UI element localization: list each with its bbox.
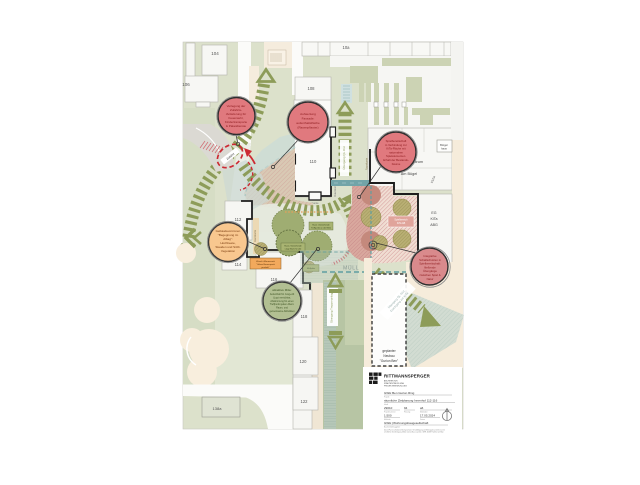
- svg-text:Rase 1 bestehende: Rase 1 bestehende: [312, 223, 330, 226]
- svg-text:EG: EG: [431, 211, 436, 215]
- svg-text:Übergang Treppenanlage: Übergang Treppenanlage: [330, 291, 334, 323]
- svg-text:Raumkante: Raumkante: [366, 157, 369, 170]
- svg-text:"Gurion Ben": "Gurion Ben": [380, 359, 398, 363]
- svg-text:120: 120: [300, 359, 308, 364]
- svg-text:PROJEKTENTWICKLUNG: PROJEKTENTWICKLUNG: [384, 385, 407, 387]
- svg-text:Rase 2 bestehende: Rase 2 bestehende: [284, 244, 302, 247]
- svg-text:112: 112: [235, 217, 242, 222]
- svg-text:17.05.2024: 17.05.2024: [420, 414, 435, 418]
- svg-text:geplanter: geplanter: [382, 349, 396, 353]
- svg-text:104: 104: [211, 51, 219, 56]
- svg-text:Übergang QL Ost: Übergang QL Ost: [342, 146, 346, 170]
- svg-text:haus: haus: [441, 147, 447, 151]
- svg-text:& Paketdienste: & Paketdienste: [226, 124, 247, 128]
- svg-text:Bauherr Auftraggeber: Bauherr Auftraggeber: [384, 425, 401, 428]
- svg-text:MÜLL: MÜLL: [343, 265, 359, 272]
- svg-text:KiTa AB: KiTa AB: [397, 222, 406, 225]
- svg-text:Projekt: Projekt: [384, 395, 390, 398]
- svg-text:94: 94: [404, 406, 408, 410]
- svg-text:räumliche Zielplanung Innenhof: räumliche Zielplanung Innenhof 112-116: [384, 399, 438, 403]
- svg-text:118: 118: [301, 314, 308, 319]
- svg-text:GWH (Wohnungsbaugesellschaft: GWH (Wohnungsbaugesellschaft: [384, 421, 428, 425]
- svg-text:Treffpunkt an der Mitte: Treffpunkt an der Mitte: [311, 226, 332, 229]
- svg-text:Neubau: Neubau: [383, 354, 394, 358]
- svg-text:106: 106: [182, 82, 190, 87]
- svg-text:(Rasenpflaster): (Rasenpflaster): [297, 126, 318, 130]
- svg-text:Bürger: Bürger: [440, 143, 448, 147]
- svg-text:138a: 138a: [213, 406, 223, 411]
- svg-text:Natur: Natur: [427, 277, 434, 281]
- svg-text:108: 108: [308, 86, 316, 91]
- svg-text:10a: 10a: [343, 45, 351, 50]
- svg-text:1:500: 1:500: [384, 414, 392, 418]
- svg-text:114: 114: [235, 262, 242, 267]
- svg-text:Am Bügel: Am Bügel: [401, 172, 418, 176]
- svg-text:KiTa: KiTa: [431, 217, 438, 221]
- svg-text:"Urban Bannerpark: "Urban Bannerpark: [256, 263, 276, 266]
- svg-text:110: 110: [310, 159, 317, 164]
- svg-text:produkt": produkt": [261, 266, 269, 269]
- svg-text:122: 122: [301, 399, 309, 404]
- svg-text:attraktive Mitte:: attraktive Mitte:: [272, 288, 292, 292]
- svg-text:Wand it Mauerwerk: Wand it Mauerwerk: [256, 260, 276, 263]
- svg-text:Maßstäbe: Maßstäbe: [420, 410, 428, 413]
- svg-text:ABG: ABG: [430, 223, 438, 227]
- svg-text:Raumkante: Raumkante: [254, 229, 257, 242]
- svg-text:Planung: Planung: [404, 411, 410, 413]
- svg-text:bäume: bäume: [392, 162, 401, 166]
- svg-text:GWH Ben Gurion Ring: GWH Ben Gurion Ring: [384, 391, 415, 395]
- svg-text:aufenthaltsfläche: aufenthaltsfläche: [296, 121, 320, 125]
- svg-text:Aufwertung: Aufwertung: [300, 112, 316, 116]
- svg-text:29010: 29010: [384, 406, 393, 410]
- svg-text:Datum: Datum: [420, 418, 426, 421]
- svg-text:gemeinsame Aktivitäten: gemeinsame Aktivitäten: [269, 310, 295, 313]
- svg-text:Projektnummer: Projektnummer: [384, 410, 396, 413]
- svg-text:Vegetation: Vegetation: [221, 249, 236, 253]
- svg-text:Maßstab: Maßstab: [384, 418, 391, 421]
- svg-text:Fassade:: Fassade:: [302, 117, 315, 121]
- svg-text:Inhalt: Inhalt: [384, 403, 389, 406]
- svg-text:Liege Bank für alle: Liege Bank für alle: [285, 248, 302, 250]
- svg-text:a6: a6: [420, 406, 424, 410]
- svg-text:RITTMANNSPERGER: RITTMANNSPERGER: [384, 374, 431, 379]
